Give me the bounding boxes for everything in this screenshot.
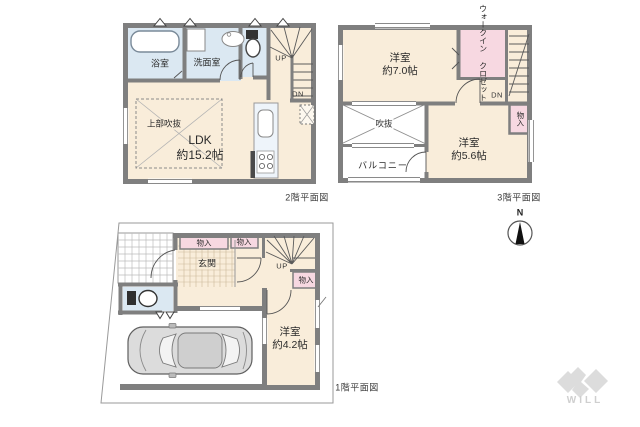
floor1-up-label: UP [276,261,287,270]
floor1-toilet-icon [127,291,157,307]
car-icon [128,324,252,378]
floor2-up-label: UP [275,53,286,62]
washbasin-icon [222,32,244,47]
floor-plan-drawing [0,0,640,427]
floor2-caption: 2階平面図 [285,192,329,203]
kitchen-counter [251,103,279,178]
floor1-storage1-label: 物入 [197,238,212,247]
will-logo-mark [557,367,608,398]
floor1-bedroom-label: 洋室 約4.2帖 [272,326,308,352]
bathtub-icon [131,31,179,52]
floor1-caption: 1階平面図 [335,382,379,393]
door-swing-marks [156,312,174,319]
garage-wall [120,384,262,390]
floor1-entrance-label: 玄関 [198,258,216,269]
floor3-bedroom1-label: 洋室 約7.0帖 [382,52,418,78]
floor1-storage3-label: 物入 [299,275,314,284]
floor1-storage2-label: 物入 [237,237,252,246]
floor2-ldk-label: LDK 約15.2帖 [176,133,223,163]
will-logo-text: WILL [567,395,603,408]
compass-icon [508,221,532,245]
floor2-shaft-box [300,105,314,124]
washing-machine-icon [187,29,205,51]
floor1-porch [118,233,173,283]
floor3-plan [338,23,535,183]
floor2-dn-label: DN [292,89,304,98]
floor3-balcony-label: バルコニー [358,160,408,171]
floor3-bedroom2-label: 洋室 約5.6帖 [451,137,487,163]
floor2-void-above-label: 上部吹抜 [146,119,182,130]
floor3-wic-label: ウォークイン クロゼット [478,5,487,102]
floor3-void-label: 吹抜 [374,119,393,130]
floor3-caption: 3階平面図 [497,192,541,203]
floor2-washroom-label: 洗面室 [193,57,220,68]
floor2-toilet-icon [246,30,260,57]
floor1-plan [101,223,333,403]
compass-north-label: N [517,207,524,218]
kitchen-sink-icon [258,110,273,137]
stove-icon [257,151,274,173]
floor2-bathroom-label: 浴室 [151,58,169,69]
floor-plan-page: 浴室 洗面室 LDK 約15.2帖 上部吹抜 UP DN 2階平面図 洋室 約7… [0,0,640,427]
floor3-storage-label: 物入 [515,112,524,127]
floor3-dn-label: DN [491,90,503,99]
